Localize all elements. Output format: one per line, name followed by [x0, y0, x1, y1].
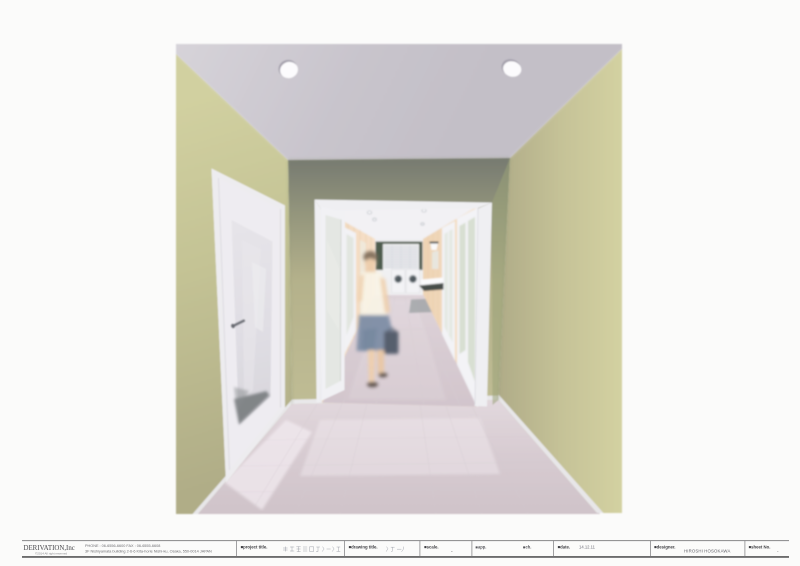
svg-text:■project title.: ■project title.: [241, 545, 268, 550]
svg-text:■designer.: ■designer.: [654, 545, 675, 550]
svg-text:■sheet No.: ■sheet No.: [749, 545, 771, 550]
svg-text:©2014 All right reserved: ©2014 All right reserved: [35, 552, 67, 556]
svg-text:HIROSHI HOSOKAWA: HIROSHI HOSOKAWA: [684, 548, 731, 553]
svg-text:3F Nishiyamata building 2-6-6: 3F Nishiyamata building 2-6-6 Kita-horie…: [85, 550, 212, 554]
svg-text:■date.: ■date.: [558, 545, 571, 550]
svg-text:14.12.11: 14.12.11: [579, 544, 596, 549]
svg-text:■ch.: ■ch.: [523, 545, 531, 550]
svg-text:■app.: ■app.: [476, 545, 487, 550]
svg-text:PHONE : 06-6556-6600 FAX : 06: PHONE : 06-6556-6600 FAX : 06-6555-6608: [85, 544, 160, 548]
svg-text:■scale.: ■scale.: [424, 545, 439, 550]
svg-text:■drawing title.: ■drawing title.: [349, 545, 378, 550]
